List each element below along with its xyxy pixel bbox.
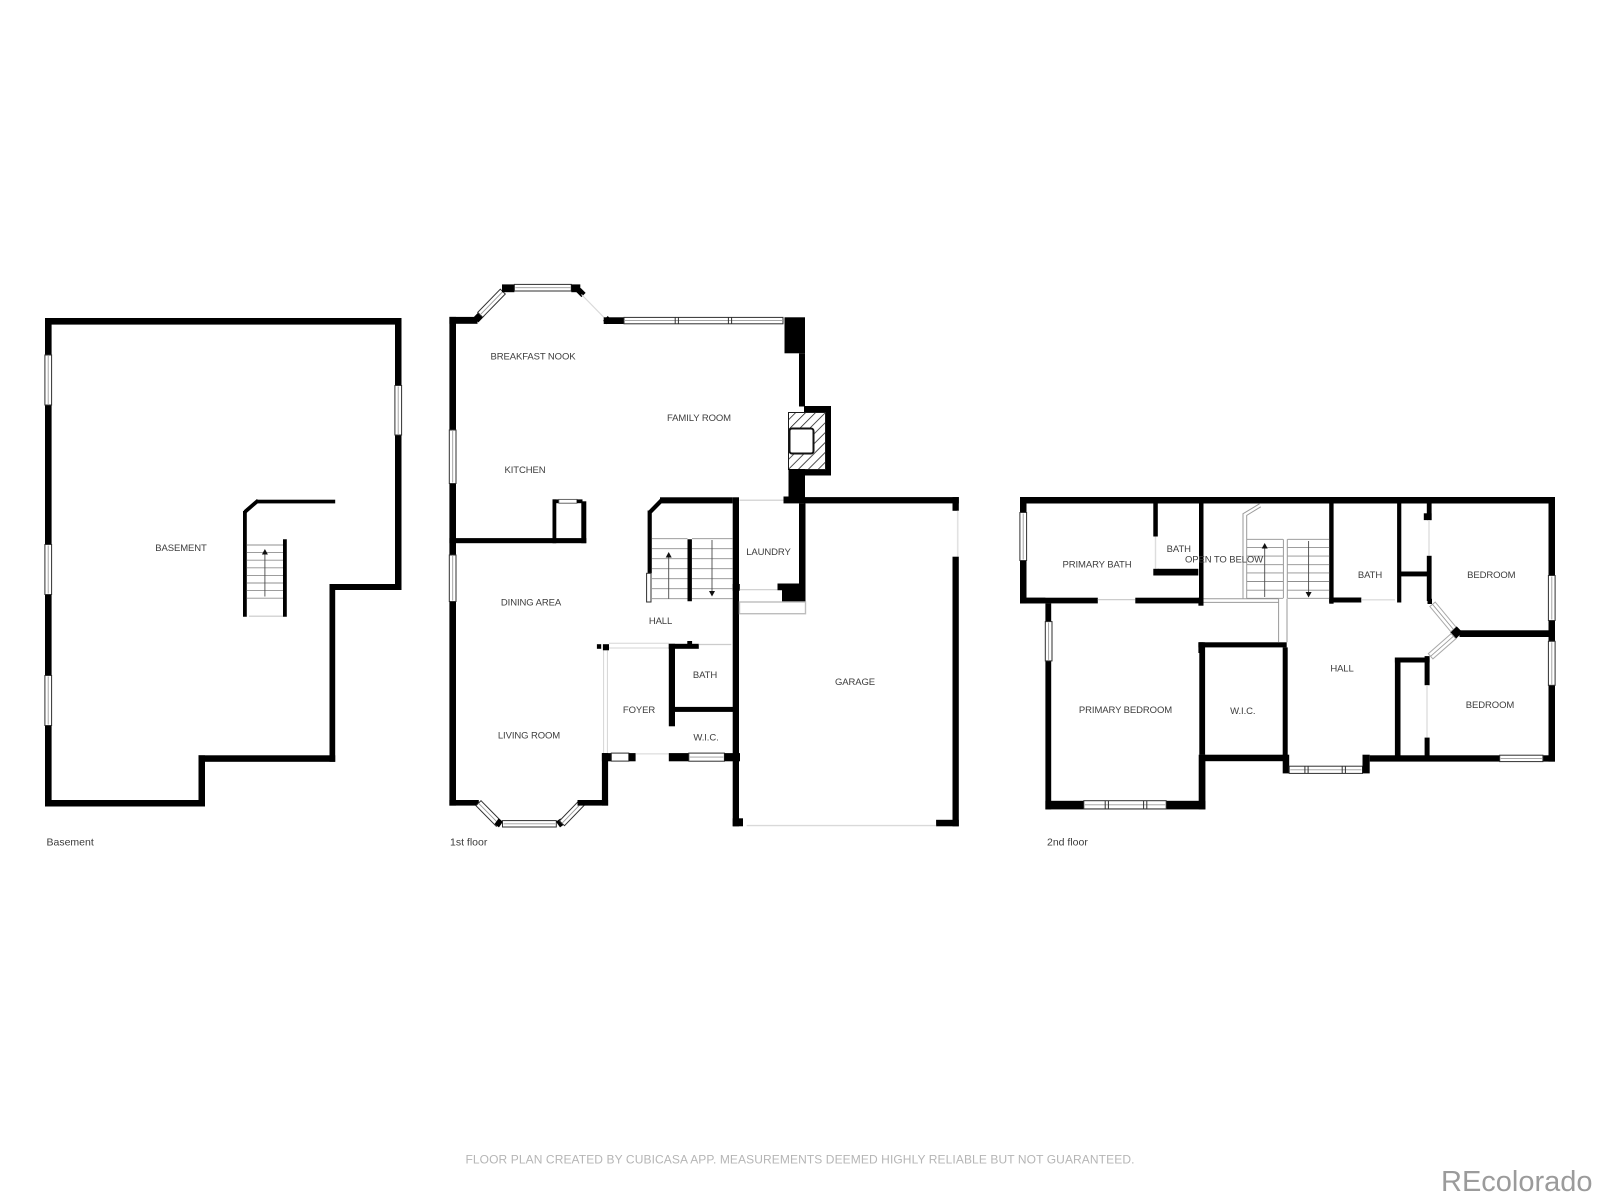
svg-text:BATH: BATH [1167,544,1191,555]
svg-text:BATH: BATH [1358,570,1382,581]
svg-text:BEDROOM: BEDROOM [1466,700,1515,711]
svg-text:DINING AREA: DINING AREA [501,598,562,609]
svg-text:HALL: HALL [649,616,672,627]
svg-text:BASEMENT: BASEMENT [155,543,207,554]
svg-text:KITCHEN: KITCHEN [505,465,546,476]
svg-text:REcolorado: REcolorado [1441,1166,1593,1198]
svg-text:LIVING ROOM: LIVING ROOM [498,731,560,742]
svg-text:LAUNDRY: LAUNDRY [746,547,791,558]
svg-text:HALL: HALL [1330,664,1353,675]
svg-text:FLOOR PLAN CREATED BY CUBICASA: FLOOR PLAN CREATED BY CUBICASA APP. MEAS… [465,1153,1134,1167]
svg-text:BREAKFAST NOOK: BREAKFAST NOOK [490,352,576,363]
svg-text:FOYER: FOYER [623,705,655,716]
svg-text:Basement: Basement [47,837,94,849]
svg-text:PRIMARY BATH: PRIMARY BATH [1062,560,1131,571]
svg-text:FAMILY ROOM: FAMILY ROOM [667,413,731,424]
svg-text:W.I.C.: W.I.C. [1230,706,1255,717]
svg-text:BATH: BATH [693,670,717,681]
svg-text:PRIMARY BEDROOM: PRIMARY BEDROOM [1079,705,1172,716]
svg-text:2nd floor: 2nd floor [1047,837,1088,849]
svg-text:BEDROOM: BEDROOM [1467,570,1516,581]
svg-text:OPEN TO BELOW: OPEN TO BELOW [1185,555,1263,566]
svg-text:1st floor: 1st floor [450,837,488,849]
svg-text:W.I.C.: W.I.C. [693,733,718,744]
svg-text:GARAGE: GARAGE [835,677,875,688]
